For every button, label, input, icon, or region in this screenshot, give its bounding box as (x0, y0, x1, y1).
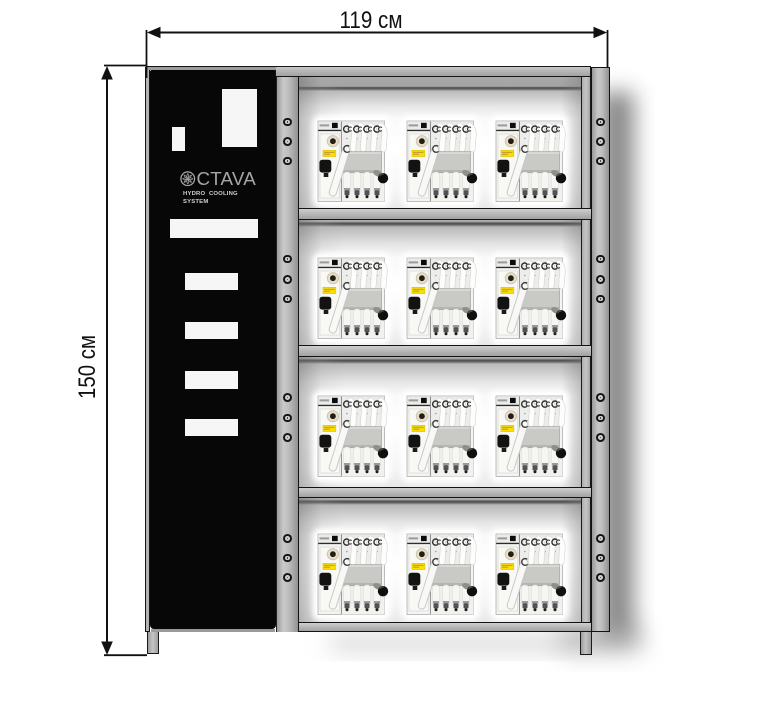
svg-text:150 см: 150 см (74, 335, 101, 399)
svg-text:119 см: 119 см (340, 7, 403, 34)
